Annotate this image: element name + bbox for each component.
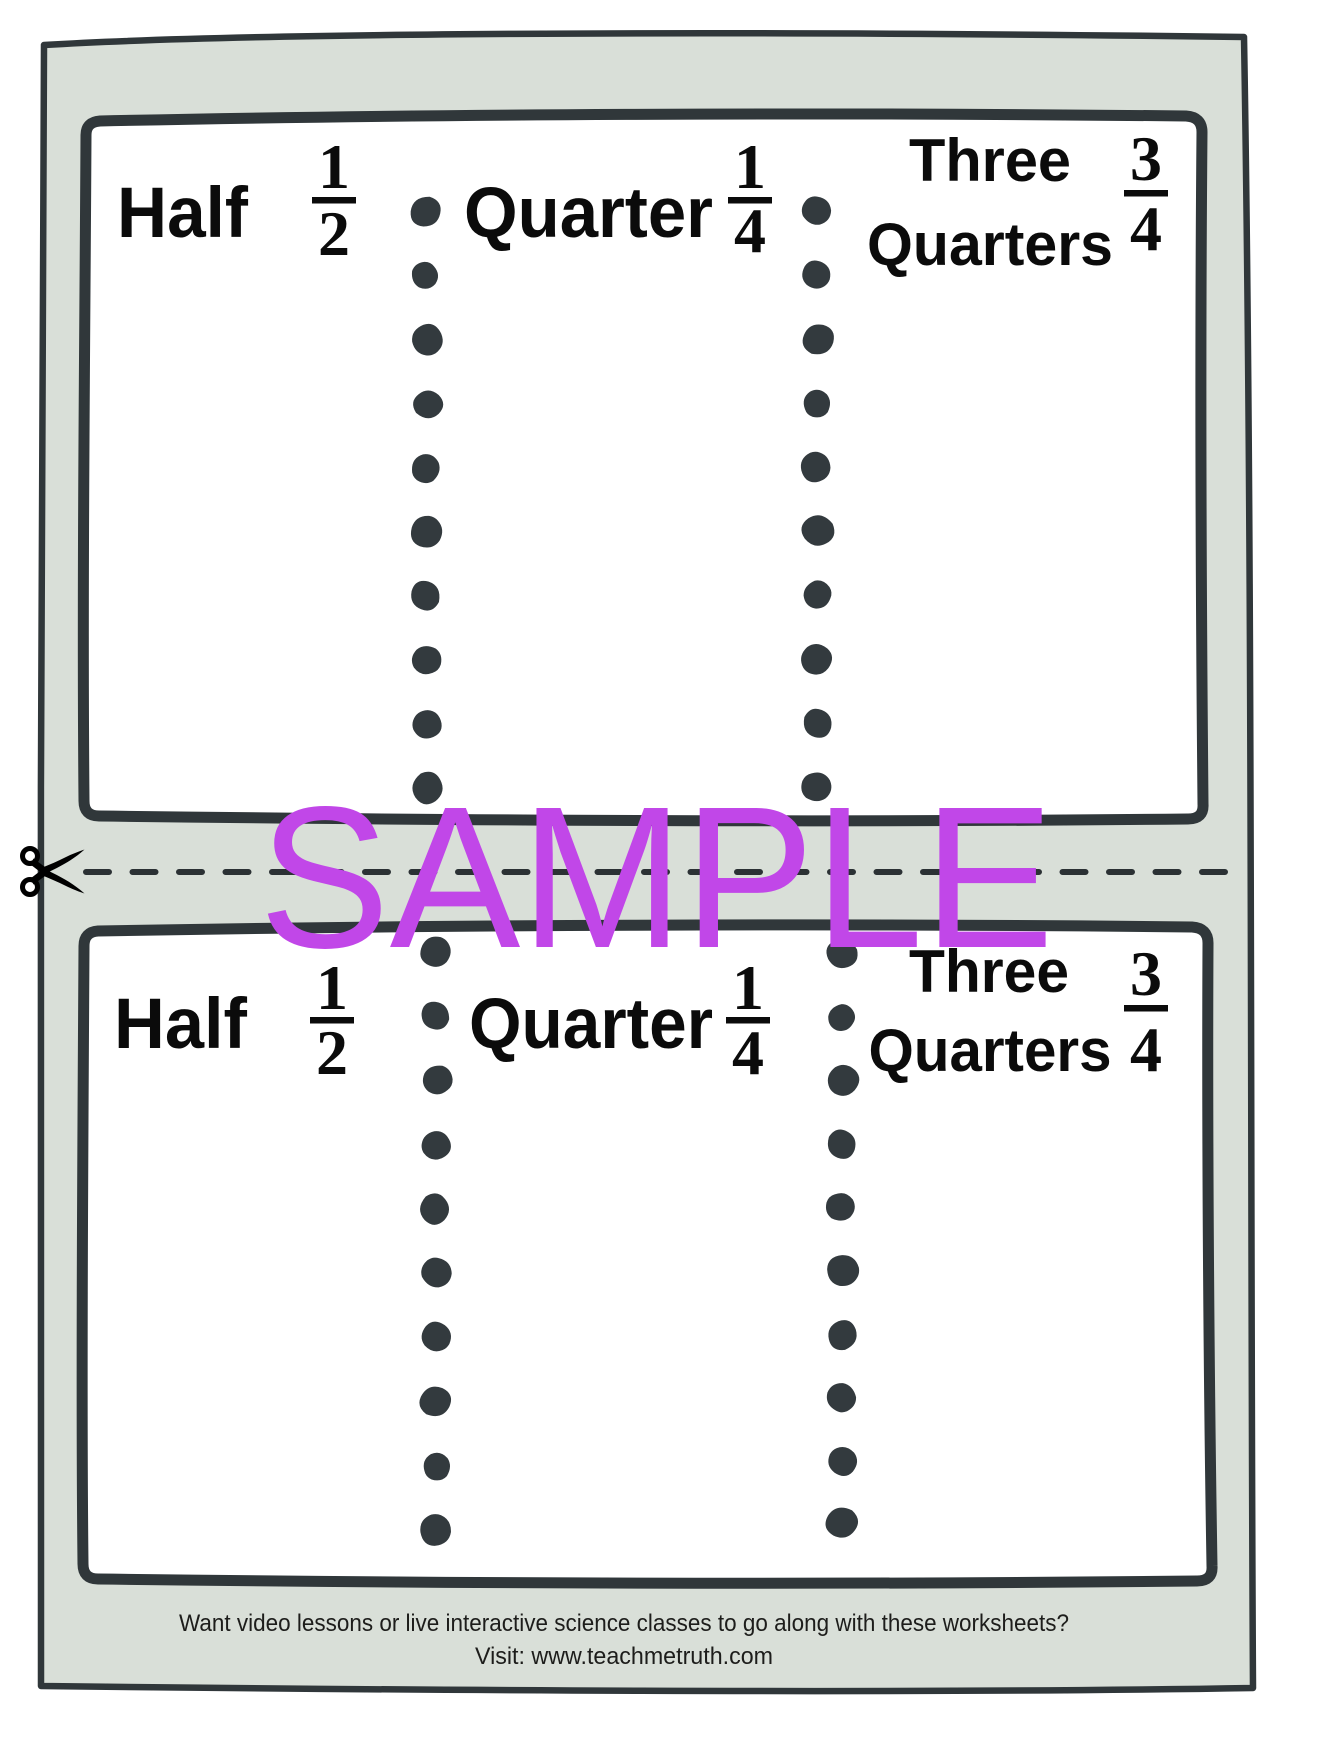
svg-text:1: 1 (318, 131, 350, 202)
svg-text:4: 4 (734, 195, 766, 266)
svg-text:4: 4 (1130, 193, 1162, 264)
svg-text:Quarters: Quarters (867, 211, 1113, 278)
svg-text:3: 3 (1130, 123, 1162, 194)
svg-text:Half: Half (117, 174, 248, 253)
svg-text:Quarter: Quarter (469, 985, 713, 1064)
svg-text:2: 2 (318, 198, 350, 269)
svg-text:Three: Three (909, 127, 1071, 194)
svg-text:Want video lessons or live int: Want video lessons or live interactive s… (179, 1610, 1069, 1637)
svg-text:Visit: www.teachmetruth.com: Visit: www.teachmetruth.com (475, 1643, 773, 1670)
svg-text:4: 4 (1130, 1014, 1162, 1085)
svg-text:Half: Half (114, 985, 247, 1064)
svg-text:4: 4 (732, 1017, 764, 1088)
svg-text:Quarter: Quarter (464, 174, 713, 253)
svg-text:1: 1 (734, 131, 766, 202)
svg-text:2: 2 (316, 1017, 348, 1088)
svg-text:Quarters: Quarters (869, 1017, 1112, 1084)
svg-text:SAMPLE: SAMPLE (259, 764, 1054, 990)
svg-text:3: 3 (1130, 938, 1162, 1009)
